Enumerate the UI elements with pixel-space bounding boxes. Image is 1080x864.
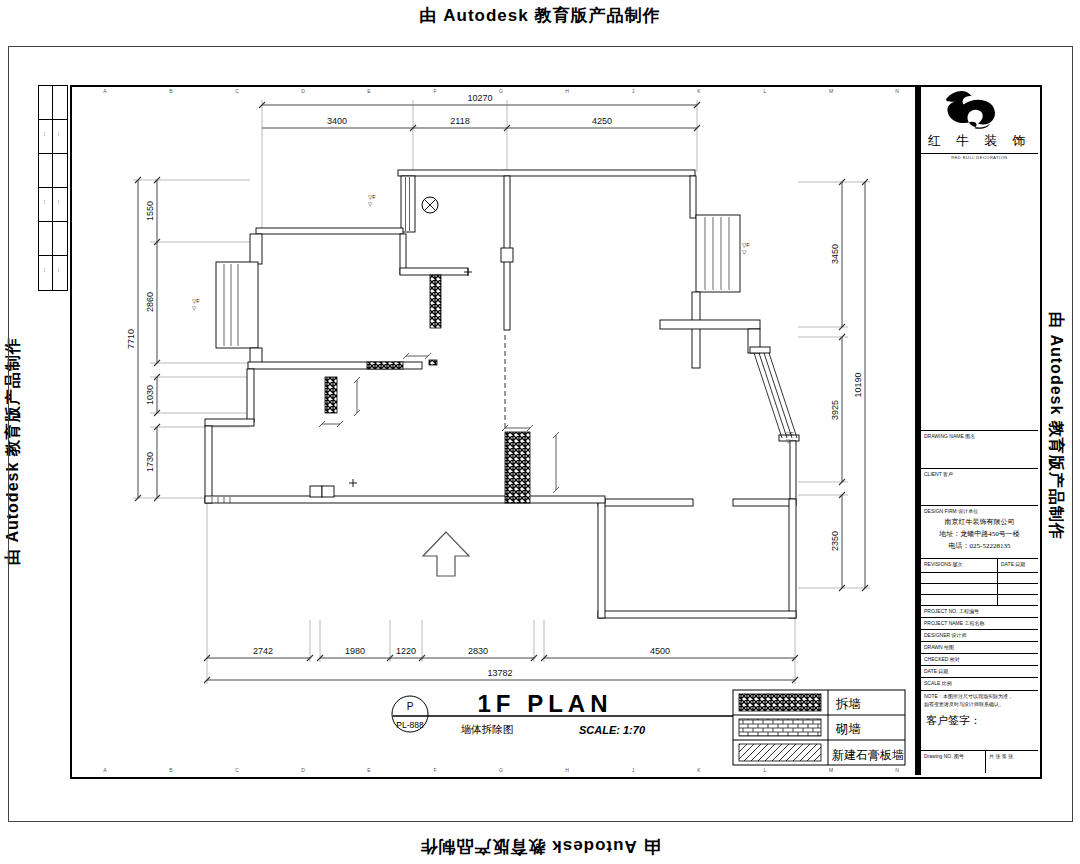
svg-text:G: G [499,767,503,773]
title-circle-code: P [407,701,414,712]
strip-cell: ⋯ [42,268,48,273]
svg-text:1030: 1030 [145,385,155,405]
plan-subtitle: 墙体拆除图 [461,723,514,735]
svg-text:D: D [301,767,305,773]
svg-text:3400: 3400 [327,116,347,126]
field-label: DRAWN 绘图 [924,644,954,650]
svg-text:M: M [829,767,833,773]
svg-text:▽: ▽ [192,305,197,311]
svg-text:7710: 7710 [126,329,136,349]
svg-text:A: A [103,767,107,773]
svg-text:E: E [367,767,371,773]
plan-scale: SCALE: 1:70 [579,724,646,736]
svg-text:J: J [632,767,635,773]
note-line: NOTE：本图所注尺寸以现场实际为准， [924,693,1013,699]
svg-text:1730: 1730 [145,452,155,472]
extension-lines [133,100,870,684]
svg-text:2830: 2830 [468,646,488,656]
company-phone: 电话：025-52228135 [921,541,1038,551]
brand-subtitle: RED BULL DECORATION [921,155,1038,160]
redbull-logo-icon [933,88,1025,130]
title-block: 红 牛 装 饰 RED BULL DECORATION DRAWING NAME… [921,85,1038,773]
entry-arrow [423,532,469,576]
brand-name: 红 牛 装 饰 [921,132,1038,150]
legend-label: 拆墙 [835,697,862,711]
drawing-name-label: DRAWING NAME 图名 [924,433,975,439]
strip-cell: ⋯ [56,132,62,137]
svg-text:10270: 10270 [467,93,492,103]
title-circle-number: PL-888 [396,720,424,730]
curved-window [754,353,797,438]
revision-strip: ⋯ ⋯ ⋯ ⋯ ⋯ ⋯ [38,85,68,291]
svg-text:A: A [103,88,107,94]
drawing-no-label: Drawing NO. 图号 [924,753,964,759]
svg-text:B: B [169,88,173,94]
svg-text:4250: 4250 [592,116,612,126]
svg-text:J: J [632,88,635,94]
svg-text:3925: 3925 [830,400,840,420]
field-label: CHECKED 校对 [924,656,960,662]
client-signature-label: 客户签字： [926,713,981,728]
company-name: 南京红牛装饰有限公司 [921,517,1038,527]
svg-text:N: N [895,88,899,94]
svg-text:13782: 13782 [487,668,512,678]
svg-text:K: K [697,88,701,94]
watermark-bottom: 由 Autodesk 教育版产品制作 [420,835,661,858]
revision-date-label: DATE 日期 [1001,561,1025,567]
svg-text:2860: 2860 [145,292,155,312]
legend-label: 新建石膏板墙 [832,748,904,762]
field-label: PROJECT NO. 工程编号 [924,608,979,614]
strip-cell: ⋯ [42,132,48,137]
svg-text:2742: 2742 [253,646,273,656]
svg-text:K: K [697,767,701,773]
watermark-top: 由 Autodesk 教育版产品制作 [420,4,661,27]
legend-swatch-gypsum [739,744,821,761]
dimension-labels: 10270 3400 2118 4250 2742 1980 1220 2830… [126,93,863,678]
svg-text:L: L [764,767,767,773]
svg-text:3450: 3450 [830,244,840,264]
demolish-wall-segments [325,275,530,503]
svg-text:1220: 1220 [396,646,416,656]
legend-swatch-brick [739,719,821,736]
svg-text:H: H [565,88,569,94]
svg-text:L: L [764,88,767,94]
svg-text:H: H [565,767,569,773]
floor-plan-canvas: ABCDEFGHJKLMN ABCDEFGHJKLMN 10270 340 [70,85,915,775]
svg-text:2118: 2118 [450,116,469,126]
svg-text:▽: ▽ [368,201,373,207]
strip-cell: ⋯ [56,268,62,273]
svg-text:D: D [301,88,305,94]
strip-divider [52,86,53,290]
legend-swatch-demolish [739,694,821,711]
svg-text:4500: 4500 [650,646,670,656]
window-glass-lines [212,177,729,503]
legend: 拆墙 砌墙 新建石膏板墙 [733,690,905,765]
svg-text:1550: 1550 [145,201,155,221]
legend-label: 砌墙 [835,722,862,736]
svg-text:G: G [499,88,503,94]
svg-text:1980: 1980 [345,646,365,656]
note-line: 如有变更请及时与设计师联系确认。 [924,701,1004,707]
field-label: DESIGNER 设计师 [924,632,967,638]
field-label: PROJECT NAME 工程名称 [924,620,984,626]
svg-text:▽F: ▽F [192,298,200,304]
client-label: CLIENT 客户 [924,471,953,477]
svg-text:F: F [433,88,436,94]
svg-text:2350: 2350 [830,531,840,551]
strip-cell: ⋯ [42,200,48,205]
dimension-lines [135,102,868,683]
field-label: DATE 日期 [924,668,948,674]
svg-text:E: E [367,88,371,94]
firm-label: DESIGN FIRM 设计单位 [924,508,978,514]
svg-text:▽F: ▽F [786,431,794,437]
page-label: 共 张 第 张 [989,753,1013,759]
svg-text:C: C [235,88,239,94]
svg-text:C: C [235,767,239,773]
walls [205,170,799,618]
svg-text:B: B [169,767,173,773]
svg-text:▽F: ▽F [368,194,376,200]
svg-text:10190: 10190 [853,372,863,397]
strip-cell: ⋯ [56,200,62,205]
svg-text:M: M [829,88,833,94]
revisions-label: REVISIONS 版次 [924,561,963,567]
field-label: SCALE 比例 [924,680,952,686]
svg-text:▽: ▽ [742,249,747,255]
plan-title: 1F PLAN [477,690,612,717]
svg-text:F: F [433,767,436,773]
company-address: 地址：龙蟠中路450号一楼 [921,529,1038,539]
svg-text:▽F: ▽F [742,242,750,248]
svg-text:N: N [895,767,899,773]
